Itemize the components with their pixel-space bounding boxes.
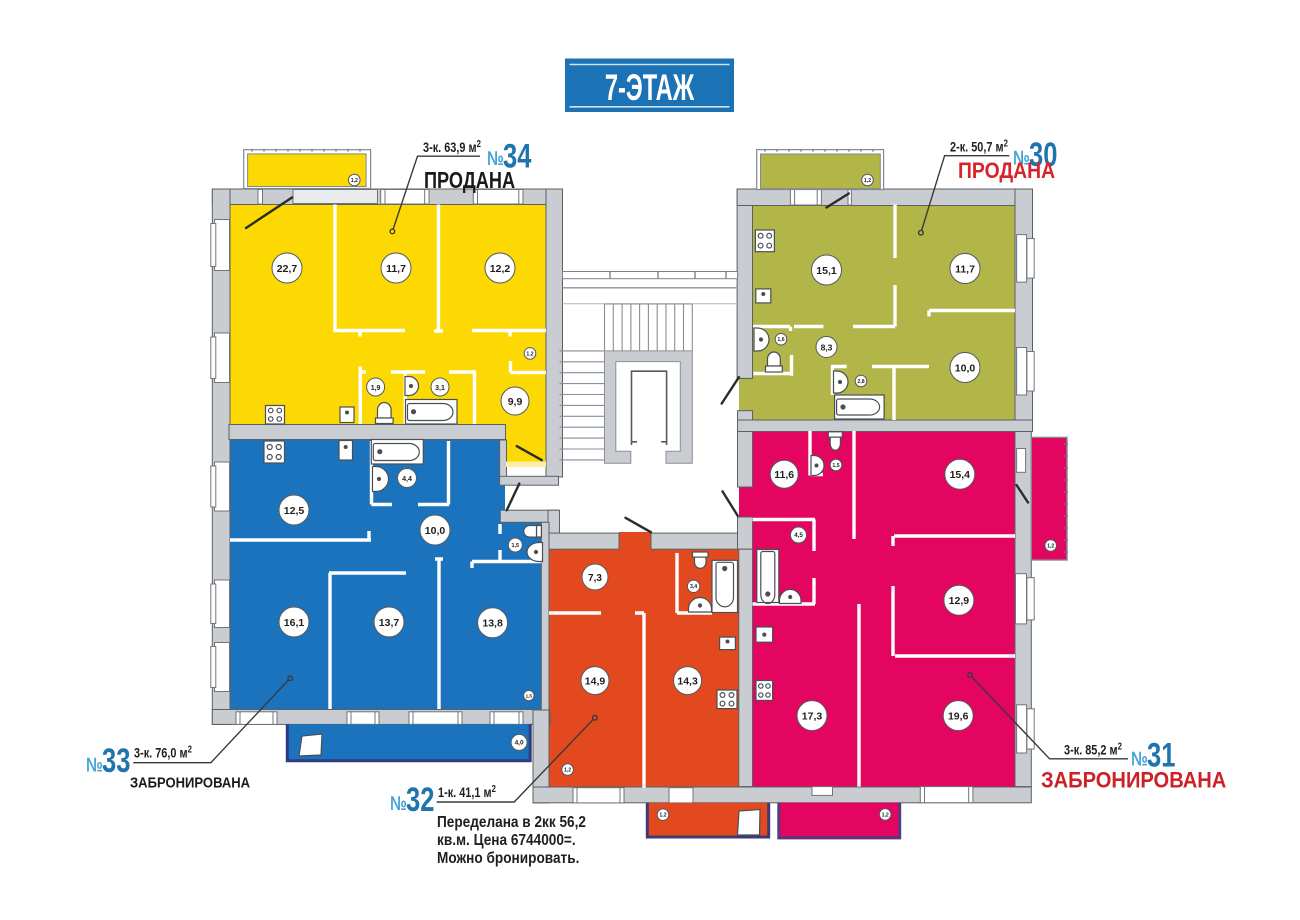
svg-text:№: № (86, 753, 103, 776)
svg-text:1,5: 1,5 (832, 463, 839, 469)
svg-text:1,2: 1,2 (564, 768, 571, 774)
svg-text:ЗАБРОНИРОВАНА: ЗАБРОНИРОВАНА (1041, 769, 1226, 793)
svg-text:1,2: 1,2 (882, 812, 889, 818)
svg-text:№: № (1131, 747, 1148, 770)
svg-text:3,4: 3,4 (690, 584, 697, 590)
svg-text:17,3: 17,3 (802, 710, 823, 722)
svg-text:3,1: 3,1 (435, 385, 445, 392)
svg-text:14,9: 14,9 (585, 675, 606, 687)
svg-text:№: № (487, 147, 504, 170)
svg-text:3-к. 63,9 м2: 3-к. 63,9 м2 (423, 138, 481, 155)
svg-text:1,5: 1,5 (511, 543, 519, 549)
svg-text:1,2: 1,2 (659, 813, 666, 819)
svg-text:13,8: 13,8 (482, 618, 503, 630)
svg-text:32: 32 (406, 781, 434, 819)
svg-text:2-к. 50,7 м2: 2-к. 50,7 м2 (950, 138, 1008, 155)
svg-text:15,1: 15,1 (816, 265, 837, 277)
svg-text:16,1: 16,1 (284, 617, 305, 629)
svg-text:15,4: 15,4 (950, 469, 971, 481)
svg-text:12,5: 12,5 (284, 505, 305, 517)
svg-text:Переделана в 2кк 56,2: Переделана в 2кк 56,2 (437, 814, 586, 831)
svg-text:№: № (390, 792, 407, 815)
svg-text:10,0: 10,0 (955, 362, 976, 374)
svg-text:4,0: 4,0 (515, 740, 524, 747)
svg-text:11,7: 11,7 (386, 263, 406, 275)
svg-text:11,7: 11,7 (955, 263, 975, 275)
svg-text:4,4: 4,4 (402, 476, 412, 483)
svg-text:Можно бронировать.: Можно бронировать. (437, 850, 579, 867)
svg-text:1,9: 1,9 (371, 385, 381, 392)
svg-text:7-ЭТАЖ: 7-ЭТАЖ (605, 67, 695, 109)
svg-text:3-к. 76,0 м2: 3-к. 76,0 м2 (134, 744, 192, 761)
svg-text:3-к. 85,2 м2: 3-к. 85,2 м2 (1064, 741, 1122, 758)
svg-text:1,6: 1,6 (777, 337, 784, 343)
svg-text:12,2: 12,2 (490, 263, 511, 275)
svg-text:33: 33 (102, 742, 130, 780)
svg-text:ЗАБРОНИРОВАНА: ЗАБРОНИРОВАНА (130, 775, 250, 791)
svg-text:ПРОДАНА: ПРОДАНА (958, 159, 1055, 183)
svg-text:8,3: 8,3 (821, 343, 833, 353)
svg-text:4,5: 4,5 (794, 532, 803, 539)
svg-text:14,3: 14,3 (677, 675, 698, 687)
svg-text:кв.м. Цена 6744000=.: кв.м. Цена 6744000=. (437, 832, 576, 849)
svg-text:22,7: 22,7 (277, 263, 298, 275)
svg-text:19,6: 19,6 (948, 710, 969, 722)
svg-text:2,8: 2,8 (857, 379, 864, 385)
svg-text:1,5: 1,5 (526, 693, 533, 698)
svg-text:13,7: 13,7 (379, 617, 400, 629)
svg-text:7,3: 7,3 (588, 573, 602, 584)
svg-text:1,2: 1,2 (1047, 543, 1054, 549)
svg-text:9,9: 9,9 (508, 396, 523, 408)
svg-text:ПРОДАНА: ПРОДАНА (424, 168, 515, 194)
svg-text:1-к. 41,1 м2: 1-к. 41,1 м2 (438, 783, 496, 800)
svg-text:11,6: 11,6 (774, 469, 794, 481)
svg-text:1,2: 1,2 (864, 178, 871, 184)
svg-text:12,9: 12,9 (949, 595, 970, 607)
svg-text:1,2: 1,2 (526, 351, 533, 357)
svg-text:10,0: 10,0 (425, 525, 446, 537)
svg-text:1,2: 1,2 (351, 178, 358, 184)
